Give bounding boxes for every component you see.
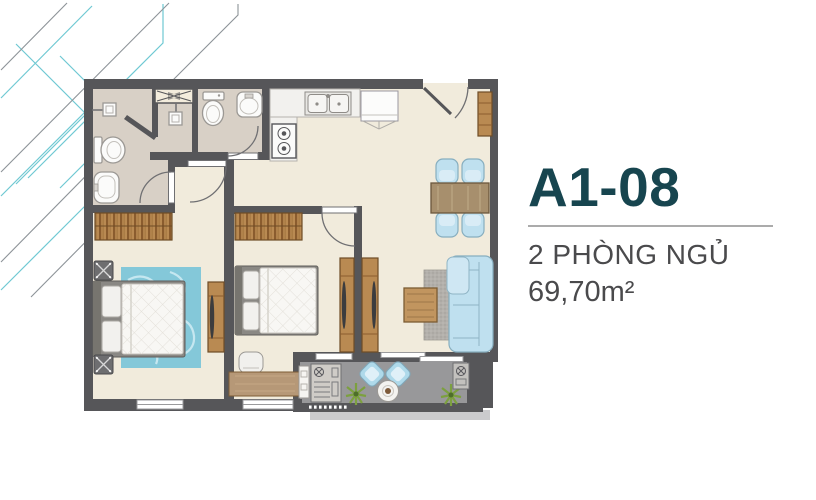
balcony-table-icon: [378, 381, 399, 402]
tv-icon: [210, 295, 214, 339]
stove-icon: [272, 124, 296, 158]
bedrooms-label: 2 PHÒNG NGỦ: [528, 239, 798, 271]
balcony-window: [316, 354, 352, 360]
shower-head-icon: [103, 103, 116, 116]
tv-cabinet: [208, 282, 224, 352]
ac-unit-icon: [453, 363, 469, 389]
tv-icon: [342, 281, 346, 329]
dining-table: [431, 183, 489, 213]
divider: [528, 225, 773, 227]
nightstand: [94, 355, 113, 374]
toilet-icon: [203, 92, 225, 126]
sofa: [447, 256, 493, 352]
desk-chair: [239, 352, 263, 373]
unit-info-panel: A1-08 2 PHÒNG NGỦ 69,70m²: [528, 160, 798, 309]
area-label: 69,70m²: [528, 276, 798, 309]
shower-head-icon: [169, 112, 182, 125]
unit-code: A1-08: [528, 160, 798, 215]
desk: [229, 372, 301, 396]
tv-cabinet: [362, 258, 378, 352]
sink-icon: [94, 172, 119, 203]
coffee-table: [404, 288, 437, 322]
bed: [93, 281, 185, 357]
nightstand: [94, 261, 113, 280]
wardrobe: [235, 213, 302, 240]
floorplan-page: { "unit": { "code": "A1-08", "bedrooms_l…: [0, 0, 816, 500]
sofa-chaise: [447, 257, 469, 294]
wardrobe: [95, 213, 172, 240]
tv-cabinet: [340, 258, 354, 352]
toilet-icon: [94, 137, 125, 163]
equipment-panel: [311, 364, 341, 402]
washer-icon: [299, 366, 309, 398]
bed: [235, 266, 318, 335]
balcony-sliding-door: [381, 353, 425, 358]
sink-icon: [237, 92, 262, 117]
kitchen-sink-icon: [305, 92, 351, 115]
shoe-cabinet: [478, 92, 492, 136]
tv-icon: [372, 281, 376, 329]
